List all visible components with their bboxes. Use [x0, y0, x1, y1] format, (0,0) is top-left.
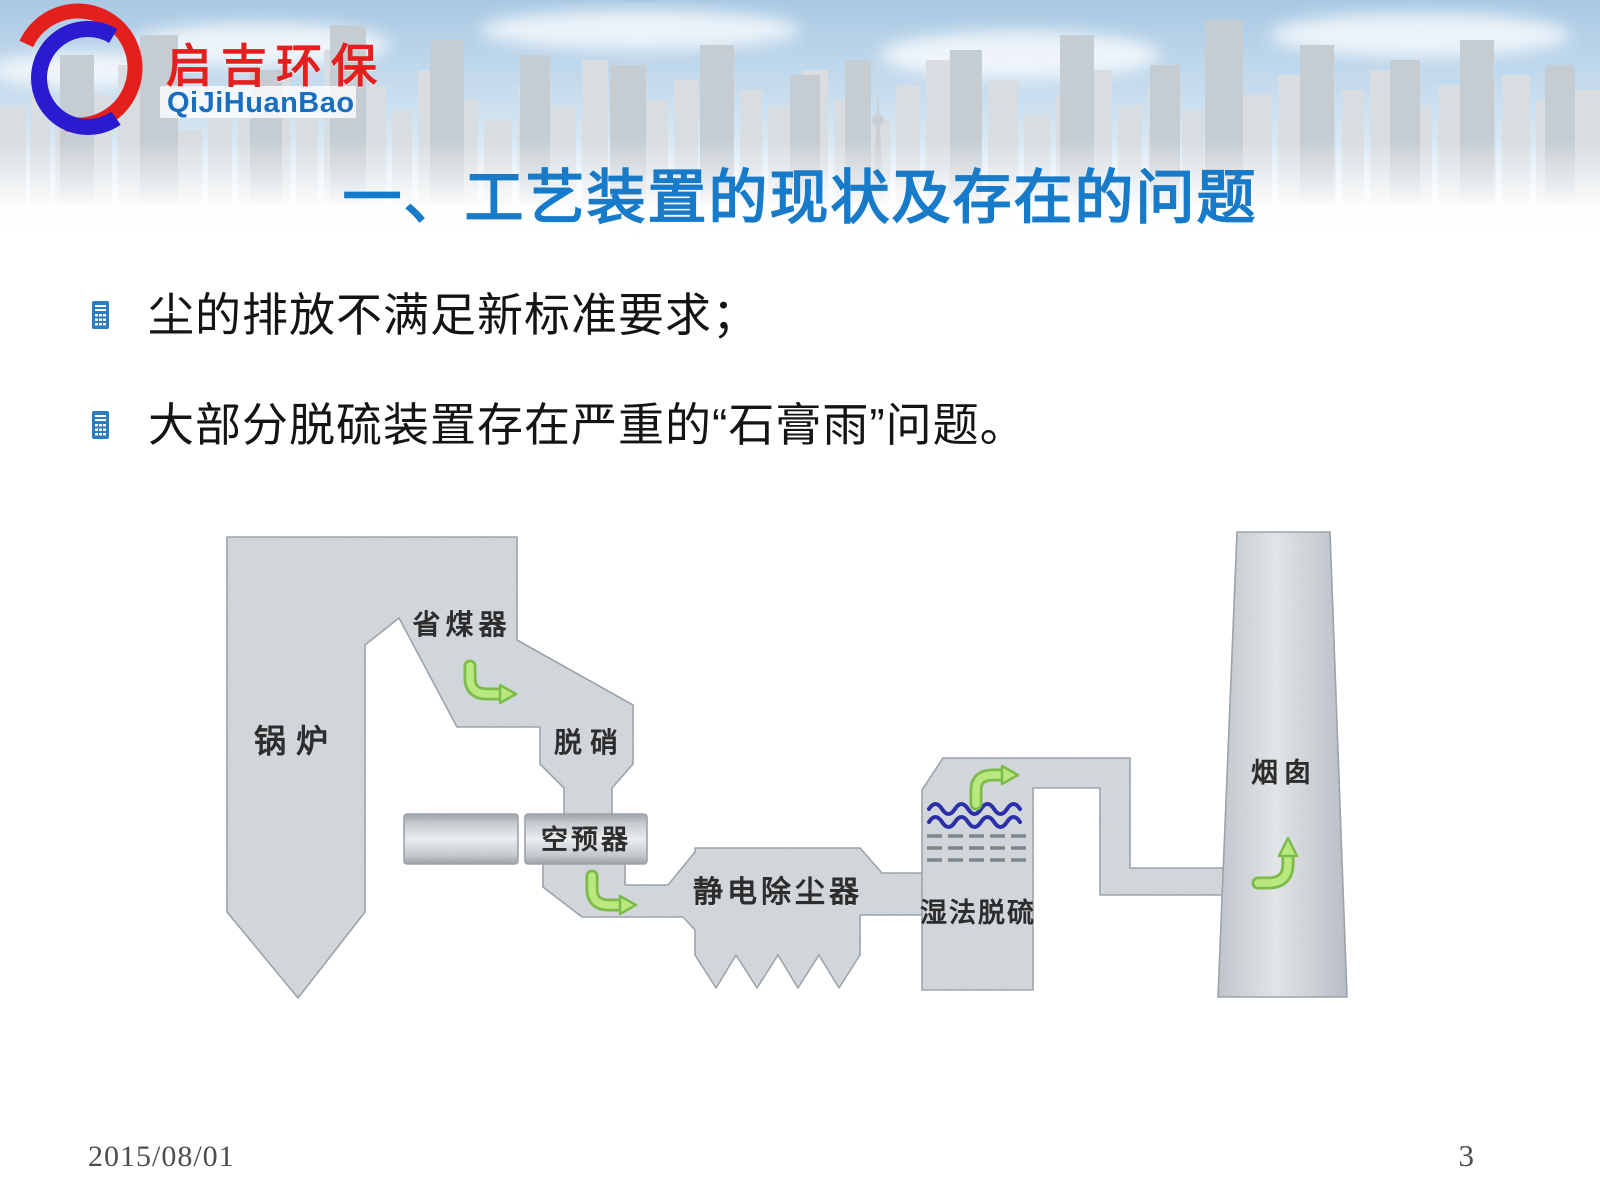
- label-boiler: 锅炉: [254, 723, 338, 759]
- fgd-spray-headers: [927, 836, 1030, 860]
- page-title: 一、工艺装置的现状及存在的问题: [0, 150, 1600, 235]
- brand-name-en: QiJiHuanBao: [167, 87, 355, 120]
- label-stack: 烟囱: [1251, 758, 1317, 788]
- label-air-preheater: 空预器: [541, 824, 631, 855]
- flow-arrow-icon: [976, 766, 1018, 804]
- bullet-item: 大部分脱硫装置存在严重的“石膏雨”问题。: [92, 389, 1027, 455]
- air-preheater-drum: [525, 814, 647, 864]
- bullet-text: 尘的排放不满足新标准要求；: [148, 279, 759, 345]
- flow-arrow-icon: [592, 876, 636, 914]
- boiler-economizer-scr-body: [227, 537, 633, 998]
- logo-swirl-icon: [4, 2, 164, 147]
- bullet-item: 尘的排放不满足新标准要求；: [92, 279, 759, 345]
- bullet-text: 大部分脱硫装置存在严重的“石膏雨”问题。: [148, 389, 1027, 455]
- label-scr-denox: 脱硝: [554, 727, 626, 759]
- fgd-slurry-waves: [929, 804, 1020, 827]
- fgd-tower-body: [922, 758, 1240, 990]
- flow-arrow-icon: [1258, 838, 1297, 883]
- presentation-slide: 启吉环保 QiJiHuanBao 一、工艺装置的现状及存在的问题 尘的排放不满足…: [0, 0, 1600, 1200]
- page-number: 3: [1459, 1138, 1475, 1174]
- document-list-icon: [92, 301, 109, 329]
- esp-body: [543, 848, 928, 988]
- footer-date: 2015/08/01: [88, 1140, 235, 1174]
- label-economizer: 省煤器: [412, 609, 511, 641]
- label-esp: 静电除尘器: [693, 875, 863, 909]
- flow-arrows: [470, 666, 1297, 914]
- air-preheater-drum-left: [404, 814, 518, 864]
- document-list-icon: [92, 411, 109, 439]
- label-wet-fgd: 湿法脱硫: [920, 897, 1036, 928]
- stack-body: [1218, 532, 1347, 997]
- flow-arrow-icon: [470, 666, 516, 703]
